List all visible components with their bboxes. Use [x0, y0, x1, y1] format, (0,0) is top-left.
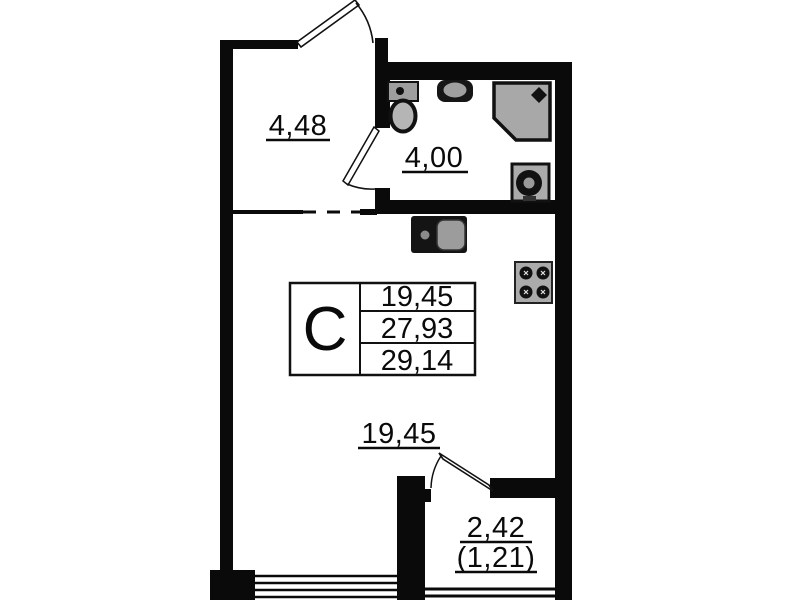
- floorplan-canvas: C 19,45 27,93 29,14 4,48 4,00 19,45 2,42…: [0, 0, 799, 600]
- shower-cabin-icon: [494, 83, 550, 140]
- unit-table-value-1: 19,45: [381, 281, 454, 313]
- entry-wall-stub: [375, 38, 388, 64]
- washing-machine-icon: [512, 164, 549, 201]
- entrance-door-leaf: [297, 0, 359, 47]
- living-area-label: 19,45: [361, 418, 436, 450]
- balcony-area-reduced-label: (1,21): [457, 542, 536, 574]
- bathroom-door-arc: [347, 184, 375, 189]
- entrance-door: [297, 0, 373, 47]
- unit-table-value-3: 29,14: [381, 345, 454, 377]
- bathroom-top-wall: [377, 62, 572, 80]
- living-room-window: [255, 576, 397, 597]
- bathroom-door: [343, 127, 379, 189]
- kitchen-sink-icon: [411, 216, 467, 253]
- balcony-glazing: [425, 589, 572, 596]
- bathroom-sink-icon: [437, 80, 473, 102]
- entrance-door-arc: [356, 3, 373, 43]
- hall-room-divider-solid: [233, 210, 303, 214]
- bottom-left-corner-wall: [210, 570, 255, 600]
- bathroom-area-label: 4,00: [405, 142, 463, 174]
- balcony-top-wall: [490, 478, 572, 498]
- hallway-area-label: 4,48: [269, 110, 327, 142]
- balcony-door-hinge-stub: [420, 489, 431, 502]
- stove-icon: [515, 262, 552, 303]
- balcony-door-leaf: [439, 453, 493, 491]
- hallway-top-wall: [220, 40, 298, 49]
- right-wall: [555, 62, 572, 600]
- unit-letter: C: [303, 295, 348, 364]
- balcony-door: [431, 453, 493, 491]
- unit-table-value-2: 27,93: [381, 313, 454, 345]
- balcony-door-arc: [431, 456, 441, 488]
- balcony-area-label: 2,42: [467, 512, 525, 544]
- left-wall: [220, 40, 233, 600]
- toilet-icon: [388, 82, 418, 132]
- bathroom-door-leaf: [343, 127, 379, 185]
- floorplan-svg: C 19,45 27,93 29,14 4,48 4,00 19,45 2,42…: [0, 0, 799, 600]
- unit-info-table: C 19,45 27,93 29,14: [290, 281, 475, 377]
